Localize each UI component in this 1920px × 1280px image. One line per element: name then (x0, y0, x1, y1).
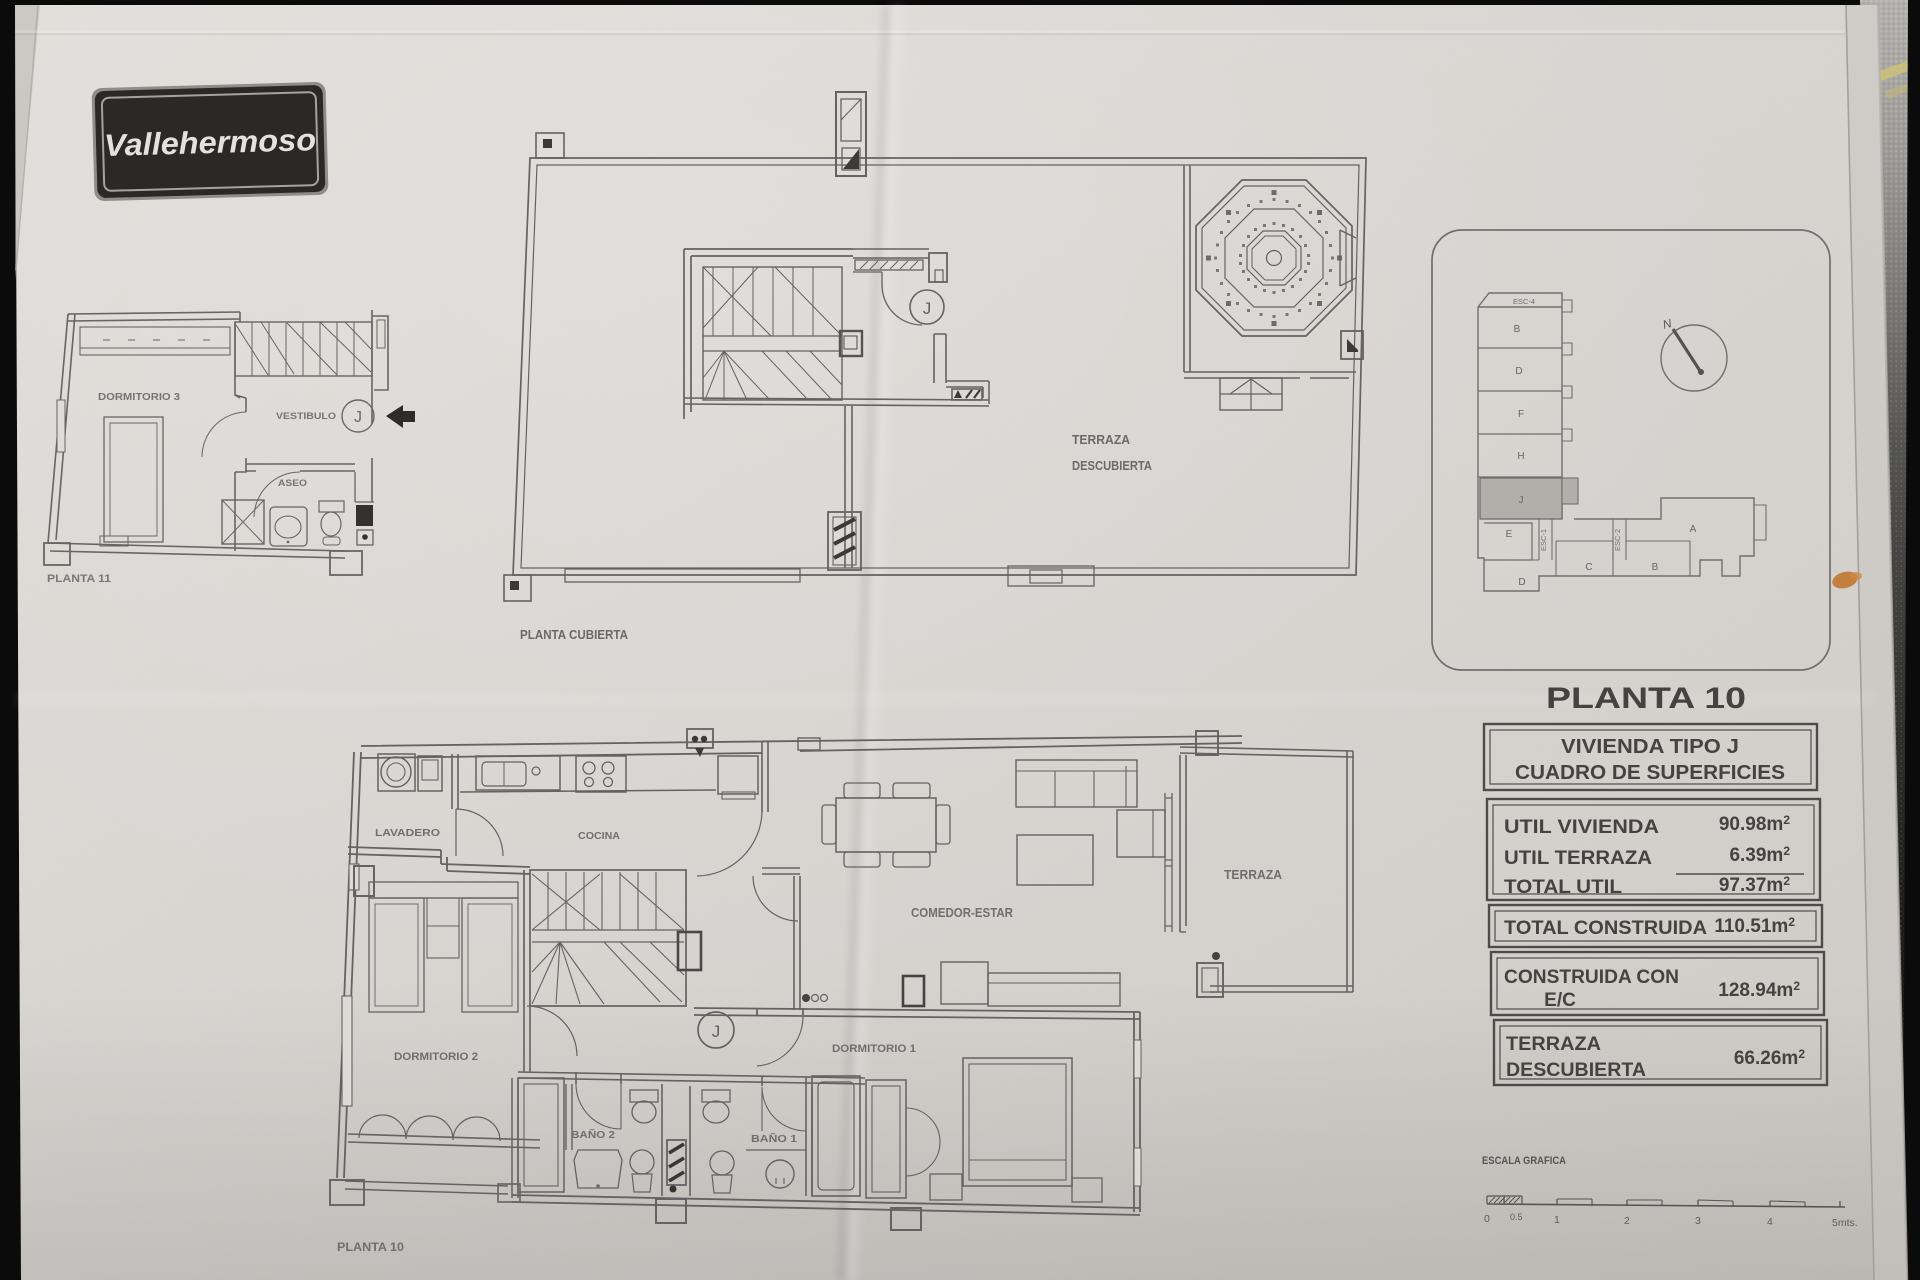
svg-text:PLANTA CUBIERTA: PLANTA CUBIERTA (520, 627, 629, 642)
svg-text:J: J (1519, 495, 1524, 506)
svg-text:PLANTA 11: PLANTA 11 (47, 573, 111, 585)
svg-text:PLANTA 10: PLANTA 10 (337, 1242, 404, 1254)
svg-text:VESTIBULO: VESTIBULO (276, 411, 336, 422)
svg-text:UTIL TERRAZA: UTIL TERRAZA (1504, 848, 1652, 869)
svg-text:B: B (1514, 324, 1521, 335)
svg-text:D: D (1515, 366, 1522, 377)
svg-text:2: 2 (1624, 1215, 1630, 1227)
svg-text:D: D (1518, 577, 1525, 588)
svg-text:LAVADERO: LAVADERO (375, 827, 440, 839)
svg-text:DESCUBIERTA: DESCUBIERTA (1072, 458, 1153, 473)
svg-text:E: E (1506, 529, 1513, 540)
svg-text:CUADRO DE SUPERFICIES: CUADRO DE SUPERFICIES (1515, 762, 1785, 784)
svg-text:5mts.: 5mts. (1832, 1217, 1858, 1229)
svg-text:Vallehermoso: Vallehermoso (104, 122, 317, 163)
svg-text:VIVIENDA TIPO J: VIVIENDA TIPO J (1561, 736, 1739, 758)
svg-text:J: J (923, 299, 932, 318)
svg-text:DORMITORIO 1: DORMITORIO 1 (832, 1043, 916, 1055)
svg-text:0: 0 (1484, 1213, 1490, 1225)
svg-text:DESCUBIERTA: DESCUBIERTA (1506, 1060, 1646, 1081)
svg-text:F: F (1518, 409, 1524, 420)
svg-text:1: 1 (1554, 1214, 1560, 1226)
svg-text:J: J (712, 1022, 721, 1041)
svg-text:128.94m2: 128.94m2 (1718, 979, 1800, 1001)
svg-text:TERRAZA: TERRAZA (1224, 868, 1282, 882)
svg-text:97.37m2: 97.37m2 (1719, 874, 1790, 896)
svg-text:COMEDOR-ESTAR: COMEDOR-ESTAR (911, 906, 1013, 920)
svg-text:BAÑO 1: BAÑO 1 (751, 1132, 798, 1145)
svg-text:3: 3 (1695, 1215, 1701, 1227)
svg-text:C: C (1585, 562, 1592, 573)
svg-text:A: A (1690, 524, 1697, 535)
svg-text:66.26m2: 66.26m2 (1734, 1047, 1805, 1069)
svg-text:ESC-2: ESC-2 (1613, 529, 1622, 551)
svg-text:DORMITORIO 2: DORMITORIO 2 (394, 1051, 478, 1063)
svg-text:UTIL VIVIENDA: UTIL VIVIENDA (1504, 817, 1659, 838)
svg-text:4: 4 (1767, 1216, 1773, 1228)
svg-text:PLANTA 10: PLANTA 10 (1546, 682, 1746, 715)
svg-text:ASEO: ASEO (278, 478, 307, 489)
svg-text:ESC-1: ESC-1 (1539, 529, 1548, 551)
svg-text:TOTAL UTIL: TOTAL UTIL (1504, 877, 1622, 898)
svg-text:J: J (354, 409, 362, 426)
svg-text:90.98m2: 90.98m2 (1719, 813, 1790, 835)
svg-text:110.51m2: 110.51m2 (1714, 915, 1795, 937)
svg-text:BAÑO 2: BAÑO 2 (571, 1128, 615, 1141)
svg-text:H: H (1517, 451, 1524, 462)
svg-text:COCINA: COCINA (578, 830, 620, 842)
svg-text:B: B (1652, 562, 1659, 573)
svg-text:0.5: 0.5 (1510, 1212, 1523, 1222)
svg-text:6.39m2: 6.39m2 (1729, 844, 1790, 866)
svg-text:TOTAL CONSTRUIDA: TOTAL CONSTRUIDA (1504, 918, 1707, 939)
svg-text:ESCALA GRAFICA: ESCALA GRAFICA (1482, 1155, 1566, 1167)
svg-text:ESC-4: ESC-4 (1513, 297, 1535, 306)
svg-text:CONSTRUIDA CON: CONSTRUIDA CON (1504, 967, 1679, 988)
svg-text:E/C: E/C (1544, 990, 1576, 1011)
svg-text:TERRAZA: TERRAZA (1506, 1034, 1601, 1055)
svg-text:DORMITORIO 3: DORMITORIO 3 (98, 392, 180, 403)
svg-text:TERRAZA: TERRAZA (1072, 432, 1131, 447)
